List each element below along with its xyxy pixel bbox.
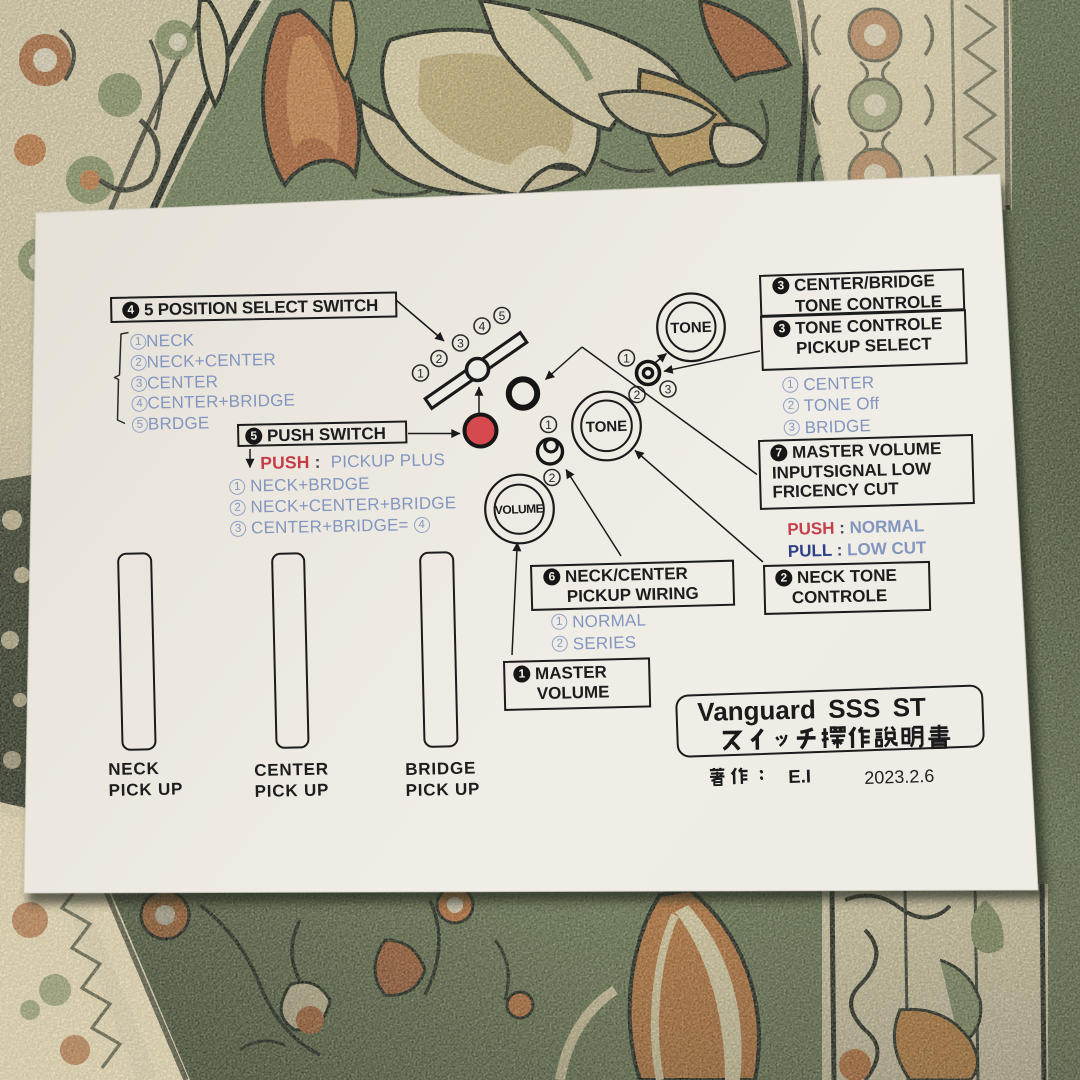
svg-text:TONE: TONE [586, 418, 628, 436]
svg-text:1: 1 [545, 418, 552, 432]
svg-text:3: 3 [457, 336, 464, 350]
svg-text:1: 1 [417, 366, 424, 380]
svg-text:TONE: TONE [670, 319, 712, 337]
svg-text:VOLUME: VOLUME [495, 501, 544, 517]
svg-text:3: 3 [665, 382, 672, 396]
svg-text:4: 4 [479, 319, 486, 333]
svg-text:2: 2 [549, 471, 556, 485]
svg-text:2: 2 [436, 352, 443, 366]
svg-text:5: 5 [499, 309, 506, 323]
svg-text:2: 2 [634, 388, 641, 402]
svg-text:1: 1 [623, 351, 630, 365]
